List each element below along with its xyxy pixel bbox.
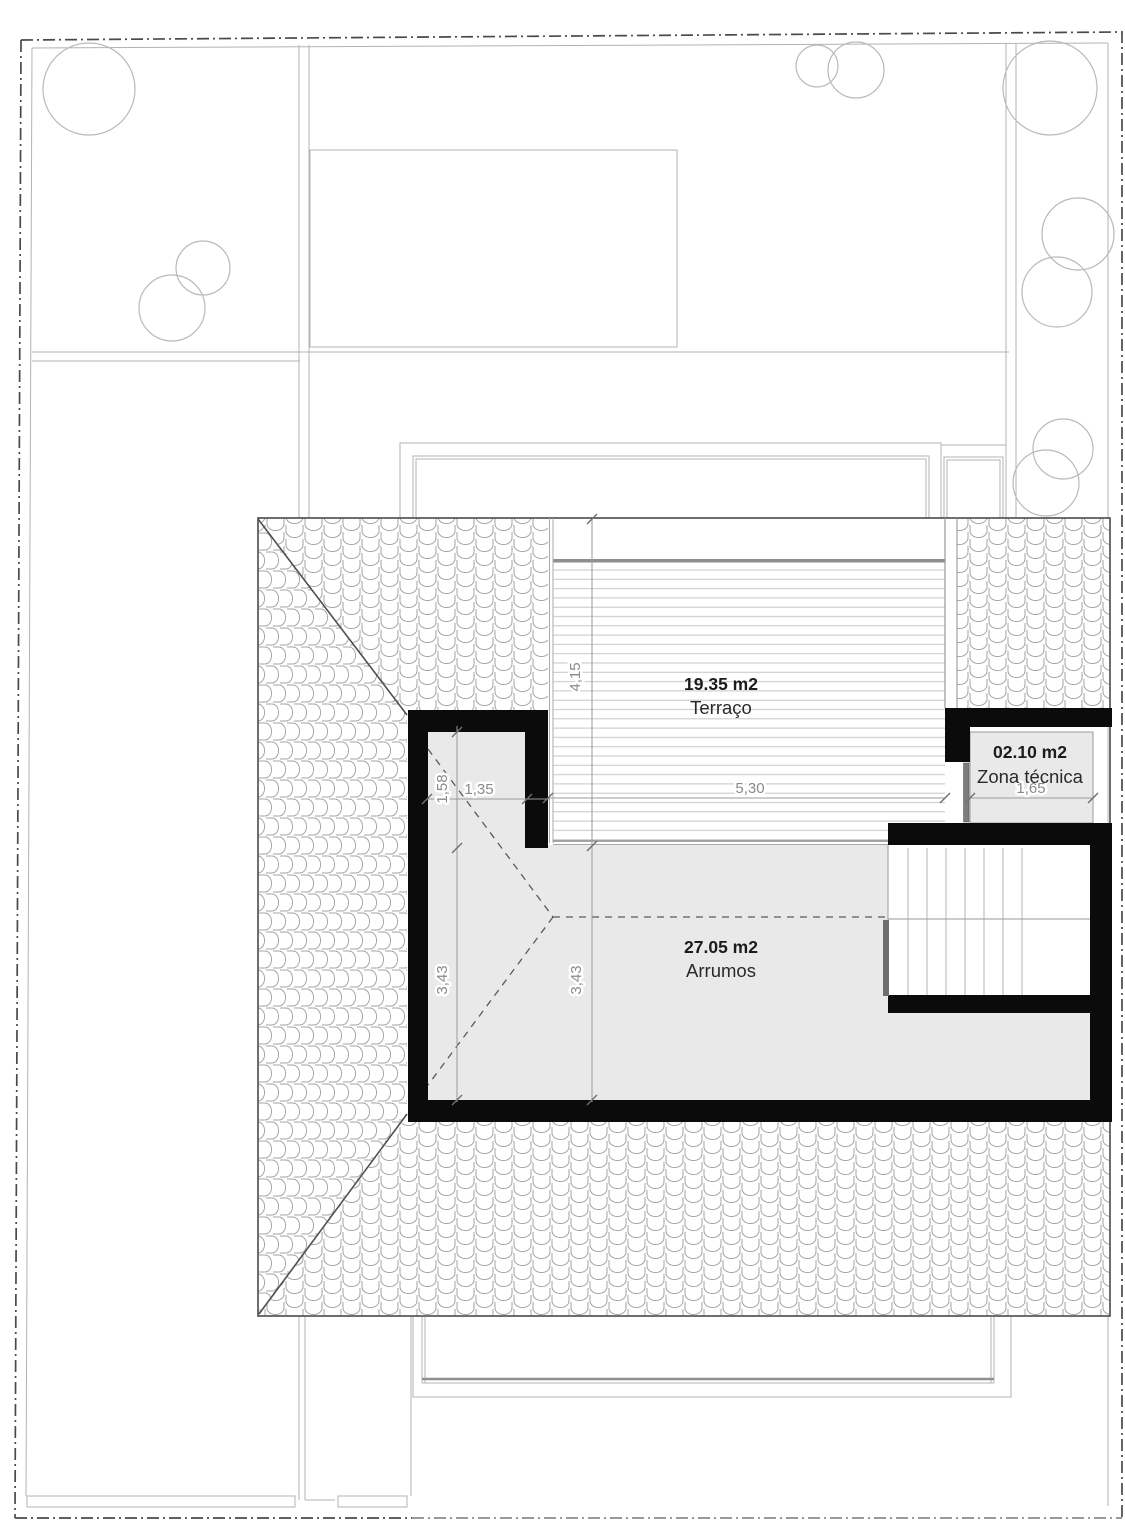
terraco-area-label: 19.35 m2 <box>684 674 758 694</box>
arrumos-name-label: Arrumos <box>686 960 756 981</box>
arrumos-floor <box>428 845 888 1100</box>
dimension-arrumos-depth-inner: 3,43 <box>568 965 585 994</box>
dimension-notch-depth: 1,58 <box>434 774 451 803</box>
zona-tecnica-area-label: 02.10 m2 <box>993 742 1067 762</box>
floor-plan-canvas: 4,15 5,30 1,65 1,35 1,58 3,43 3,43 19.35… <box>0 0 1125 1526</box>
arrumos-area-label: 27.05 m2 <box>684 937 758 957</box>
terraco-name-label: Terraço <box>690 697 752 718</box>
dimension-arrumos-depth-left: 3,43 <box>434 965 451 994</box>
dimension-terrace-depth: 4,15 <box>567 662 584 691</box>
dimension-notch-width: 1,35 <box>464 781 493 798</box>
arrumos-floor-under-stairs <box>888 1013 1090 1100</box>
zona-tecnica-door <box>964 763 970 822</box>
zona-tecnica-name-label: Zona técnica <box>977 766 1084 787</box>
dimension-terrace-width: 5,30 <box>735 780 764 797</box>
floor-plan-page: 4,15 5,30 1,65 1,35 1,58 3,43 3,43 19.35… <box>0 0 1125 1526</box>
stairs <box>883 845 1090 996</box>
stair-handrail <box>883 920 889 996</box>
